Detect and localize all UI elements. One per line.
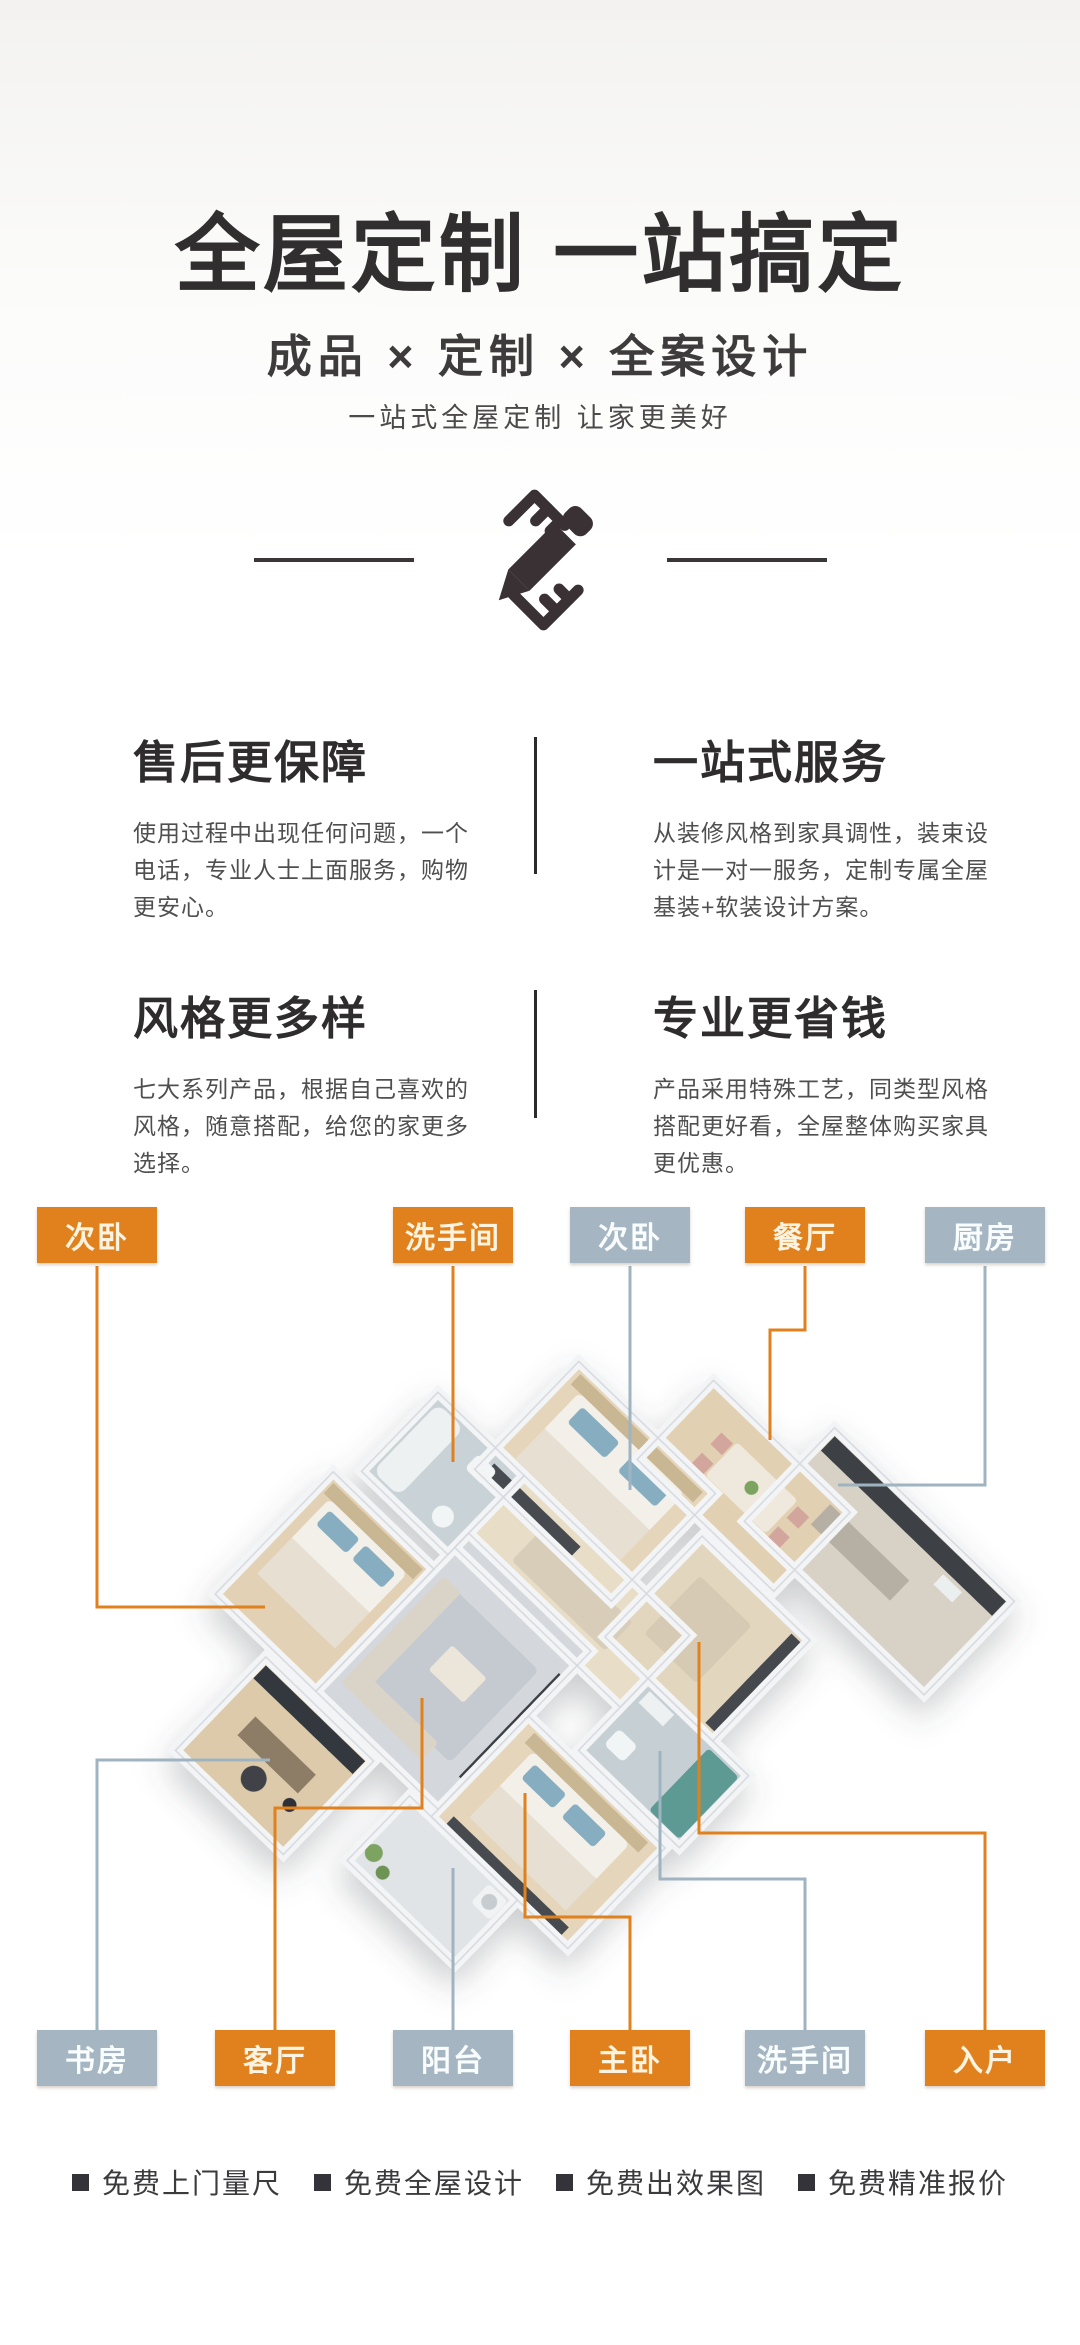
header-divider-row — [0, 470, 1080, 650]
room-label-bathroom-bottom: 洗手间 — [745, 2030, 865, 2086]
bullet-label: 免费上门量尺 — [102, 2162, 282, 2202]
room-label-balcony: 阳台 — [393, 2030, 513, 2086]
room-label-living: 客厅 — [215, 2030, 335, 2086]
feature-after-sales: 售后更保障 使用过程中出现任何问题，一个电话，专业人士上面服务，购物更安心。 — [133, 726, 523, 925]
bullet-square-icon — [314, 2174, 331, 2191]
page-subtitle: 成品 × 定制 × 全案设计 — [0, 320, 1080, 385]
room-label-bedroom3: 次卧 — [570, 1207, 690, 1263]
feature-desc: 七大系列产品，根据自己喜欢的风格，随意搭配，给您的家更多选择。 — [133, 1071, 485, 1181]
footer-bullet-quote: 免费精准报价 — [798, 2162, 1008, 2202]
room-label-bathroom-top: 洗手间 — [393, 1207, 513, 1263]
bullet-square-icon — [556, 2174, 573, 2191]
bullet-square-icon — [798, 2174, 815, 2191]
footer-bullet-row: 免费上门量尺 免费全屋设计 免费出效果图 免费精准报价 — [0, 2162, 1080, 2202]
leader-bedroom2-top — [97, 1266, 265, 1607]
feature-title: 风格更多样 — [133, 982, 523, 1047]
feature-title: 一站式服务 — [653, 726, 1043, 791]
feature-divider-top — [534, 737, 537, 874]
feature-title: 售后更保障 — [133, 726, 523, 791]
right-rule — [667, 558, 827, 562]
feature-desc: 从装修风格到家具调性，装束设计是一对一服务，定制专属全屋基装+软装设计方案。 — [653, 815, 1005, 925]
left-rule — [254, 558, 414, 562]
footer-bullet-design: 免费全屋设计 — [314, 2162, 524, 2202]
feature-one-stop: 一站式服务 从装修风格到家具调性，装束设计是一对一服务，定制专属全屋基装+软装设… — [653, 726, 1043, 925]
bullet-label: 免费出效果图 — [586, 2162, 766, 2202]
footer-bullet-render: 免费出效果图 — [556, 2162, 766, 2202]
bullet-label: 免费精准报价 — [828, 2162, 1008, 2202]
footer-bullet-measure: 免费上门量尺 — [72, 2162, 282, 2202]
floorplan-illustration — [118, 1205, 1015, 2085]
bullet-label: 免费全屋设计 — [344, 2162, 524, 2202]
room-label-bedroom2: 次卧 — [37, 1207, 157, 1263]
room-label-entry: 入户 — [925, 2030, 1045, 2086]
room-label-kitchen: 厨房 — [925, 1207, 1045, 1263]
feature-divider-bottom — [534, 990, 537, 1118]
feature-desc: 使用过程中出现任何问题，一个电话，专业人士上面服务，购物更安心。 — [133, 815, 485, 925]
room-label-dining: 餐厅 — [745, 1207, 865, 1263]
room-label-study: 书房 — [37, 2030, 157, 2086]
floorplan-canvas — [0, 1205, 1080, 2085]
feature-title: 专业更省钱 — [653, 982, 1043, 1047]
leader-dining — [770, 1266, 805, 1440]
feature-desc: 产品采用特殊工艺，同类型风格搭配更好看，全屋整体购买家具更优惠。 — [653, 1071, 1005, 1181]
room-label-master: 主卧 — [570, 2030, 690, 2086]
pencil-ruler-icon — [460, 481, 618, 639]
page-title: 全屋定制 一站搞定 — [0, 186, 1080, 309]
feature-savings: 专业更省钱 产品采用特殊工艺，同类型风格搭配更好看，全屋整体购买家具更优惠。 — [653, 982, 1043, 1181]
bullet-square-icon — [72, 2174, 89, 2191]
page-tagline: 一站式全屋定制 让家更美好 — [0, 396, 1080, 435]
feature-styles: 风格更多样 七大系列产品，根据自己喜欢的风格，随意搭配，给您的家更多选择。 — [133, 982, 523, 1181]
